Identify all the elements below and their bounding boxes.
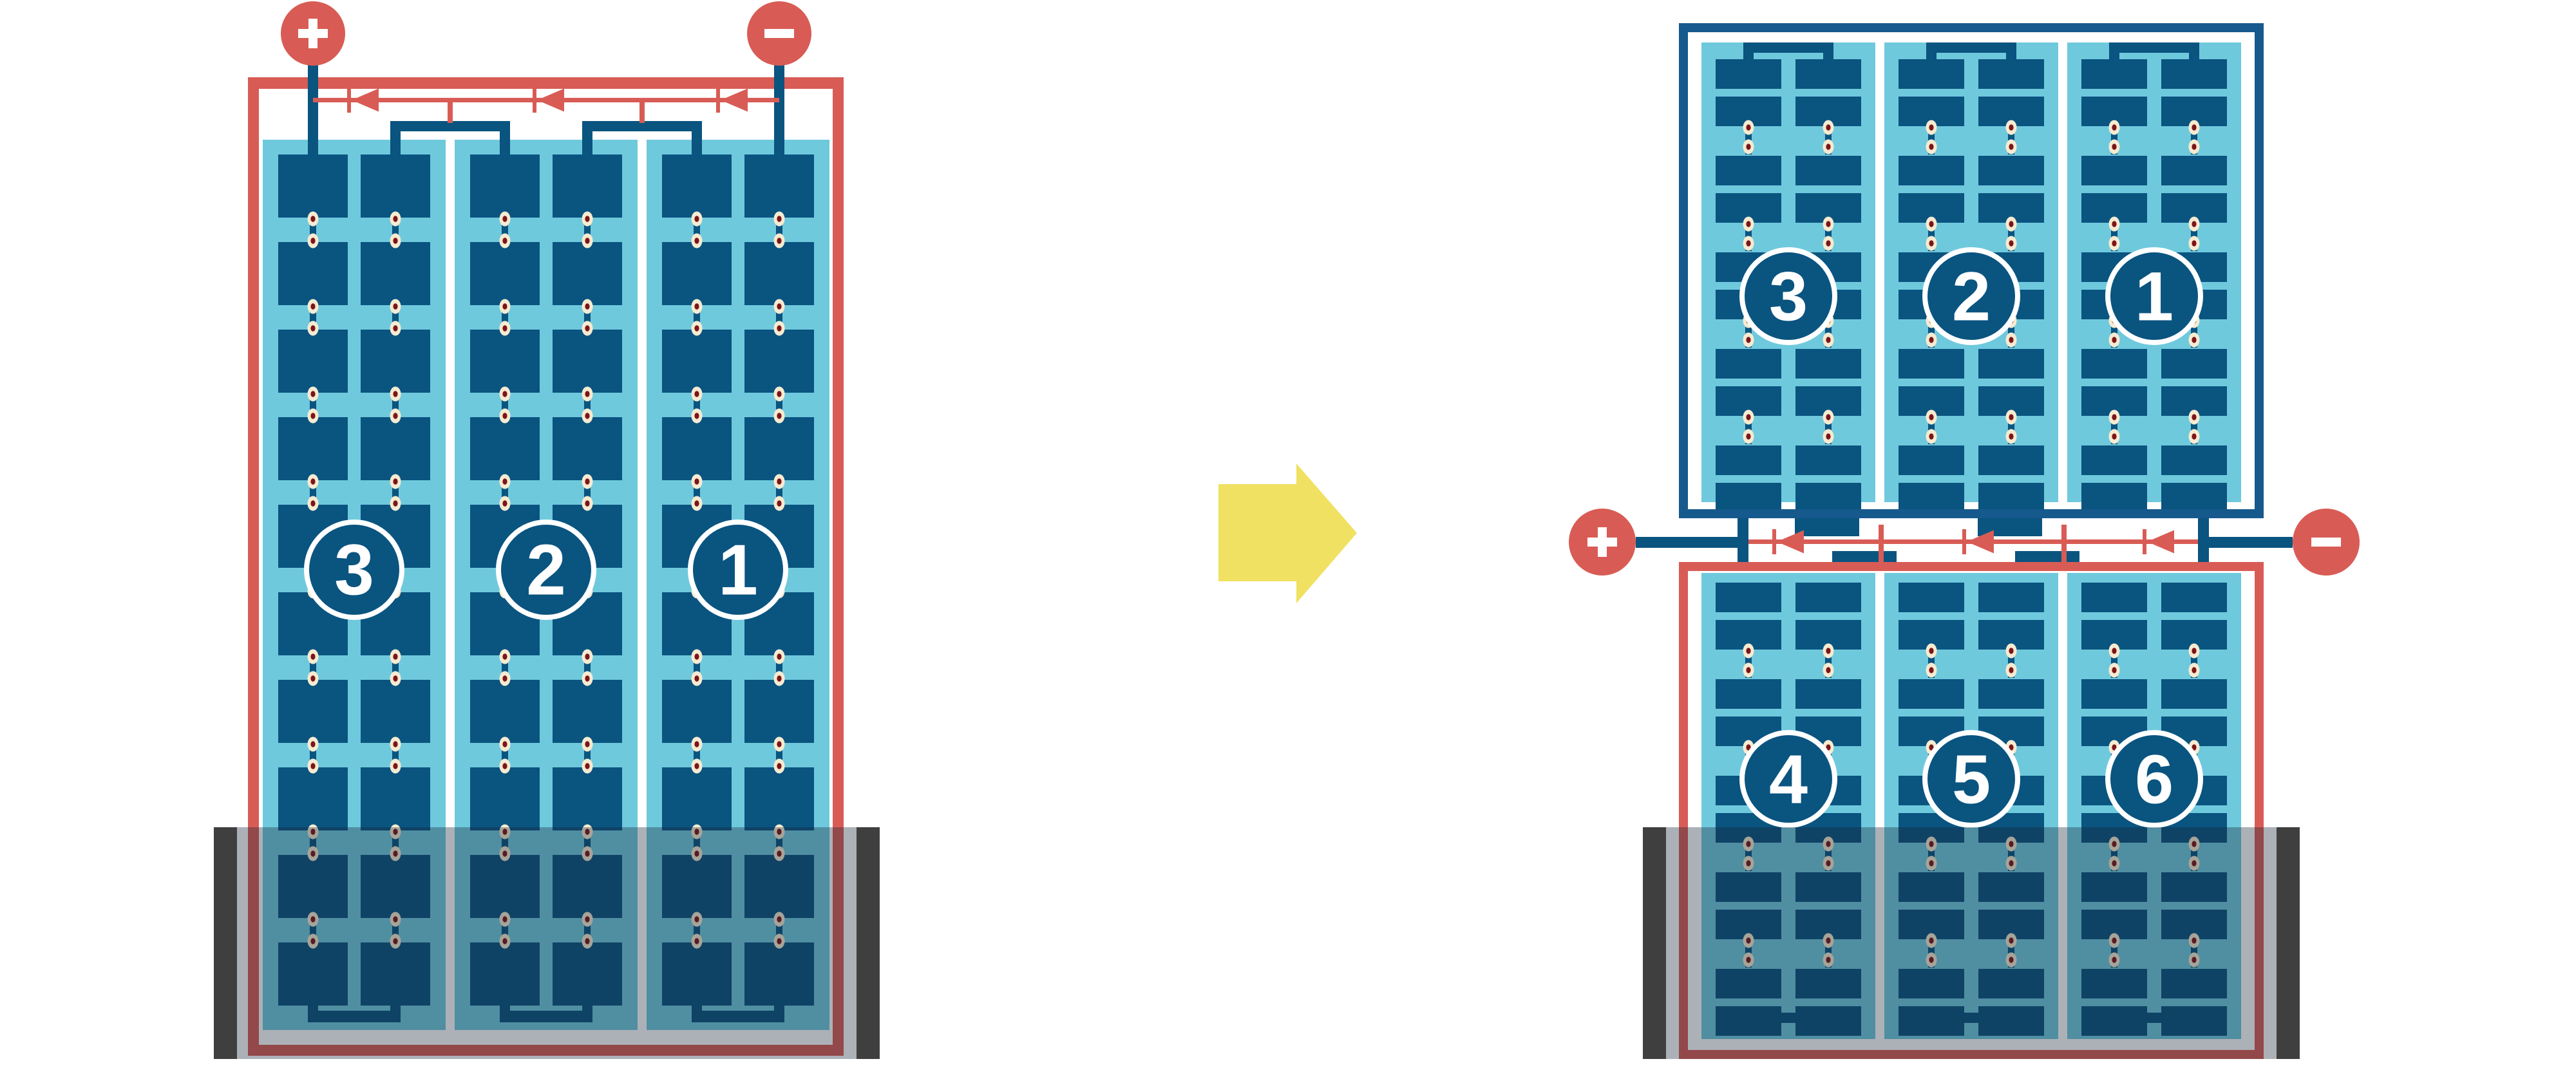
bypass-diode-icon: [533, 88, 564, 113]
solar-cell: [1795, 156, 1861, 185]
solar-cell: [2161, 349, 2227, 379]
solar-cell: [1795, 349, 1861, 379]
solder-dot-core: [1826, 240, 1830, 247]
frame-bottom: [1679, 509, 2264, 518]
solar-cell: [1795, 483, 1861, 512]
solder-dot-core: [1929, 240, 1933, 247]
solar-cell: [2081, 679, 2147, 709]
shade-post-left: [214, 827, 237, 1059]
solder-dot-core: [2112, 433, 2116, 440]
solder-dot-core: [310, 478, 315, 485]
solder-dot-core: [393, 653, 397, 660]
solder-dot-core: [2192, 667, 2196, 673]
solder-dot-core: [1746, 221, 1750, 227]
solar-cell: [2081, 483, 2147, 512]
solder-dot-core: [777, 413, 781, 419]
solder-dot-core: [777, 741, 781, 747]
solder-dot-core: [694, 325, 699, 332]
junction-bar-left: [1738, 518, 1748, 562]
solder-dot-core: [2009, 144, 2013, 150]
minus-h: [764, 29, 794, 38]
string-number: 3: [334, 530, 374, 610]
solar-cell: [553, 417, 622, 480]
solder-dot-core: [777, 500, 781, 507]
diode-triangle: [1777, 530, 1804, 554]
solar-cell: [662, 242, 732, 305]
solder-dot-core: [1929, 414, 1933, 420]
solder-dot-core: [310, 238, 315, 244]
solar-cell: [2161, 483, 2227, 512]
solder-dot-core: [502, 325, 507, 332]
junction-tab-down: [1795, 518, 1859, 536]
solder-dot-core: [2112, 648, 2116, 654]
diode-bar: [347, 88, 351, 113]
solar-cell: [1978, 583, 2044, 612]
solder-dot-core: [2192, 337, 2196, 343]
frame-top: [1679, 23, 2264, 32]
terminal-lead: [774, 57, 784, 157]
frame-top: [248, 77, 844, 89]
solder-dot-core: [2112, 144, 2116, 150]
positive-terminal: +: [281, 1, 345, 66]
solar-cell: [1899, 349, 1964, 379]
diode-bar: [716, 88, 720, 113]
string-number-badge: 1: [2108, 250, 2201, 342]
positive-terminal: +: [1569, 509, 1636, 576]
solder-dot-core: [2192, 648, 2196, 654]
string-number: 1: [2135, 257, 2173, 335]
solar-cell: [662, 680, 732, 743]
diode-bar: [1962, 529, 1966, 554]
solder-dot-core: [777, 238, 781, 244]
solar-cell: [278, 680, 348, 743]
string-jumper-leg: [1823, 53, 1833, 64]
solar-cell: [278, 417, 348, 480]
solder-dot-core: [585, 763, 589, 769]
solder-dot-core: [310, 391, 315, 397]
shadow-region: [1643, 827, 2300, 1059]
solder-dot-core: [502, 741, 507, 747]
solder-dot-core: [2009, 221, 2013, 227]
solar-cell: [470, 680, 540, 743]
plus-v: [1598, 527, 1607, 557]
bus-stub: [1879, 525, 1884, 562]
solder-dot-core: [1746, 414, 1750, 420]
left-module: 321+−: [214, 1, 880, 1059]
solar-cell: [2161, 583, 2227, 612]
solder-dot-core: [1826, 414, 1830, 420]
transition-arrow: [1218, 464, 1357, 603]
solder-dot-core: [777, 391, 781, 397]
string-jumper-top: [2109, 42, 2199, 53]
solder-dot-core: [502, 413, 507, 419]
solder-dot-core: [2112, 337, 2116, 343]
solar-cell: [278, 330, 348, 393]
frame-top: [1679, 562, 2264, 571]
string-number: 4: [1769, 740, 1808, 818]
solar-cell: [662, 767, 732, 830]
negative-terminal: −: [747, 1, 811, 66]
solar-cell: [1716, 349, 1781, 379]
solar-cell: [1978, 445, 2044, 475]
top-right-module: 321: [1679, 23, 2264, 518]
junction-tab-up: [1832, 551, 1897, 562]
solder-dot-core: [585, 325, 589, 332]
solder-dot-core: [694, 238, 699, 244]
solar-cell: [361, 242, 430, 305]
bus-stub: [639, 102, 645, 123]
solar-cell: [1795, 583, 1861, 612]
solder-dot-core: [2192, 433, 2196, 440]
solar-cell: [1795, 445, 1861, 475]
bypass-diode-icon: [347, 88, 379, 113]
solder-dot-core: [2192, 221, 2196, 227]
solar-cell: [2161, 445, 2227, 475]
string-number-badge: 4: [1742, 733, 1835, 825]
string-number-badge: 3: [307, 522, 402, 617]
solder-dot-core: [585, 741, 589, 747]
solar-cell: [553, 680, 622, 743]
string-number: 1: [718, 530, 758, 610]
solar-cell: [470, 155, 540, 218]
solar-cell: [361, 680, 430, 743]
solder-dot-core: [310, 413, 315, 419]
solder-dot-core: [585, 216, 589, 222]
solder-dot-core: [393, 741, 397, 747]
junction-bar-right: [2198, 518, 2209, 562]
string-jumper-leg: [2109, 53, 2119, 64]
string-jumper-top: [1926, 42, 2016, 53]
string-number: 6: [2135, 740, 2173, 818]
bypass-diode-icon: [1772, 529, 1804, 554]
solar-cell: [662, 155, 732, 218]
solder-dot-core: [585, 413, 589, 419]
string-jumper-leg: [2189, 53, 2199, 64]
solder-dot-core: [2009, 414, 2013, 420]
solder-dot-core: [1746, 433, 1750, 440]
diode-bar: [2143, 529, 2146, 554]
solar-cell: [2081, 156, 2147, 185]
solder-dot-core: [1746, 667, 1750, 673]
string-number-badge: 1: [690, 522, 786, 617]
solder-dot-core: [694, 675, 699, 682]
solder-dot-core: [1929, 648, 1933, 654]
solder-dot-core: [694, 391, 699, 397]
string-number: 3: [1769, 257, 1808, 335]
solder-dot-core: [1929, 337, 1933, 343]
frame-left: [1679, 23, 1688, 518]
solder-dot-core: [1746, 124, 1750, 131]
diode-triangle: [721, 89, 748, 112]
shade-post-left: [1643, 827, 1666, 1059]
solder-dot-core: [1746, 144, 1750, 150]
solder-dot-core: [2009, 124, 2013, 131]
string-number-badge: 2: [498, 522, 594, 617]
solder-dot-core: [2112, 240, 2116, 247]
diode-bar: [533, 88, 536, 113]
solder-dot-core: [2192, 240, 2196, 247]
solder-dot-core: [585, 675, 589, 682]
solar-cell: [470, 767, 540, 830]
solar-cell: [1899, 483, 1964, 512]
solder-dot-core: [777, 763, 781, 769]
solder-dot-core: [393, 238, 397, 244]
solar-cell: [1978, 679, 2044, 709]
minus-h: [2311, 538, 2341, 547]
solder-dot-core: [393, 303, 397, 310]
solder-dot-core: [1826, 433, 1830, 440]
solder-dot-core: [585, 303, 589, 310]
bus-stub: [448, 102, 453, 123]
solar-cell: [1899, 583, 1964, 612]
solder-dot-core: [1746, 337, 1750, 343]
solder-dot-core: [1929, 144, 1933, 150]
frame-right: [2255, 23, 2264, 518]
solder-dot-core: [1746, 240, 1750, 247]
solder-dot-core: [585, 500, 589, 507]
shading-overlay: [214, 827, 880, 1059]
string-number: 2: [526, 530, 566, 610]
solder-dot-core: [694, 478, 699, 485]
diode-triangle: [352, 89, 379, 112]
terminal-lead: [1636, 537, 1738, 548]
solder-dot-core: [1929, 221, 1933, 227]
diode-triangle: [2147, 530, 2174, 554]
solar-cell: [2161, 679, 2227, 709]
solder-dot-core: [777, 303, 781, 310]
negative-terminal: −: [2293, 509, 2360, 576]
solder-dot-core: [310, 741, 315, 747]
solder-dot-core: [1929, 433, 1933, 440]
jumper-leg: [500, 131, 510, 160]
solder-dot-core: [694, 500, 699, 507]
solar-cell: [361, 330, 430, 393]
solder-dot-core: [2009, 240, 2013, 247]
solar-cell: [1716, 445, 1781, 475]
solder-dot-core: [2192, 144, 2196, 150]
solder-dot-core: [310, 303, 315, 310]
module-wiring-diagram: 321+−321456+−: [0, 0, 2576, 1068]
jumper-leg: [390, 131, 401, 160]
solder-dot-core: [502, 500, 507, 507]
solar-cell: [1978, 156, 2044, 185]
string-jumper-top: [1743, 42, 1833, 53]
solder-dot-core: [694, 303, 699, 310]
string-jumper-leg: [2006, 53, 2016, 64]
solar-cell: [470, 417, 540, 480]
bypass-diode-bus: [313, 88, 779, 123]
solar-cell: [1716, 679, 1781, 709]
solder-dot-core: [393, 413, 397, 419]
solder-dot-core: [694, 741, 699, 747]
solder-dot-core: [393, 391, 397, 397]
solar-cell: [553, 242, 622, 305]
solder-dot-core: [310, 216, 315, 222]
shadow-region: [214, 827, 880, 1059]
solar-cell: [2081, 583, 2147, 612]
solar-cell: [744, 767, 814, 830]
solar-cell: [1899, 156, 1964, 185]
solder-dot-core: [310, 653, 315, 660]
solder-dot-core: [585, 653, 589, 660]
solar-cell: [553, 330, 622, 393]
solder-dot-core: [502, 238, 507, 244]
solder-dot-core: [502, 763, 507, 769]
solar-cell: [744, 330, 814, 393]
shade-post-right: [857, 827, 880, 1059]
plus-v: [308, 19, 317, 48]
solar-cell: [553, 767, 622, 830]
string-jumper-leg: [1743, 53, 1754, 64]
jumper-leg: [582, 131, 592, 160]
solder-dot-core: [1826, 124, 1830, 131]
solder-dot-core: [2112, 667, 2116, 673]
solar-cell: [1899, 445, 1964, 475]
solder-dot-core: [310, 675, 315, 682]
jumper-leg: [692, 131, 702, 160]
solar-cell: [2081, 445, 2147, 475]
solder-dot-core: [393, 325, 397, 332]
solder-dot-core: [777, 325, 781, 332]
solar-cell: [1716, 156, 1781, 185]
solar-cell: [1899, 679, 1964, 709]
solder-dot-core: [694, 413, 699, 419]
solder-dot-core: [2112, 414, 2116, 420]
string-number-badge: 2: [1925, 250, 2018, 342]
diagram-canvas: 321+−321456+−: [0, 0, 2576, 1068]
solder-dot-core: [502, 391, 507, 397]
solder-dot-core: [502, 675, 507, 682]
solar-cell: [662, 417, 732, 480]
solder-dot-core: [777, 653, 781, 660]
solar-cell: [1716, 483, 1781, 512]
shade-post-right: [2277, 827, 2300, 1059]
diode-triangle: [537, 89, 564, 112]
solder-dot-core: [1826, 648, 1830, 654]
solder-dot-core: [694, 216, 699, 222]
solder-dot-core: [585, 478, 589, 485]
bus-stub: [2061, 525, 2067, 562]
solder-dot-core: [393, 675, 397, 682]
string-number-badge: 5: [1925, 733, 2018, 825]
solar-cell: [361, 155, 430, 218]
solar-cell: [361, 767, 430, 830]
solder-dot-core: [777, 675, 781, 682]
bypass-diode-icon: [716, 88, 748, 113]
solder-dot-core: [2192, 414, 2196, 420]
solar-cell: [744, 242, 814, 305]
solar-cell: [744, 680, 814, 743]
solder-dot-core: [777, 478, 781, 485]
solar-cell: [744, 155, 814, 218]
solder-dot-core: [694, 653, 699, 660]
solder-dot-core: [1826, 667, 1830, 673]
solder-dot-core: [393, 500, 397, 507]
solder-dot-core: [1826, 221, 1830, 227]
string-number-badge: 3: [1742, 250, 1835, 342]
solar-cell: [278, 155, 348, 218]
string-number: 2: [1952, 257, 1991, 335]
solder-dot-core: [2192, 124, 2196, 131]
bypass-diode-icon: [2143, 529, 2174, 554]
solder-dot-core: [2009, 337, 2013, 343]
solar-cell: [361, 417, 430, 480]
solder-dot-core: [502, 478, 507, 485]
solar-cell: [1978, 483, 2044, 512]
minus-icon: [2311, 538, 2341, 547]
solar-cell: [278, 242, 348, 305]
solder-dot-core: [310, 325, 315, 332]
solder-dot-core: [1746, 648, 1750, 654]
solar-cell: [278, 767, 348, 830]
solder-dot-core: [393, 478, 397, 485]
solder-dot-core: [2009, 648, 2013, 654]
solder-dot-core: [310, 500, 315, 507]
solder-dot-core: [2009, 433, 2013, 440]
solar-cell: [662, 330, 732, 393]
string-jumper-leg: [1926, 53, 1937, 64]
diode-bar: [1772, 529, 1776, 554]
solder-dot-core: [2112, 221, 2116, 227]
solar-cell: [1978, 349, 2044, 379]
solder-dot-core: [585, 238, 589, 244]
solder-dot-core: [1826, 337, 1830, 343]
solder-dot-core: [502, 653, 507, 660]
solder-dot-core: [585, 391, 589, 397]
solder-dot-core: [1929, 667, 1933, 673]
solar-cell: [1795, 679, 1861, 709]
solder-dot-core: [393, 216, 397, 222]
solder-dot-core: [2112, 124, 2116, 131]
solder-dot-core: [502, 303, 507, 310]
solar-cell: [470, 330, 540, 393]
terminal-lead: [2209, 537, 2293, 548]
solder-dot-core: [310, 763, 315, 769]
solar-cell: [2161, 156, 2227, 185]
minus-icon: [764, 29, 794, 38]
string-number-badge: 6: [2108, 733, 2201, 825]
solder-dot-core: [1929, 124, 1933, 131]
solder-dot-core: [777, 216, 781, 222]
solder-dot-core: [2009, 667, 2013, 673]
right-arrow-icon: [1218, 464, 1357, 603]
solder-dot-core: [393, 763, 397, 769]
solar-cell: [2081, 349, 2147, 379]
solder-dot-core: [694, 763, 699, 769]
solder-dot-core: [502, 216, 507, 222]
solder-dot-core: [1826, 144, 1830, 150]
terminal-lead: [308, 57, 318, 157]
junction-tab-up: [2015, 551, 2079, 562]
solar-cell: [1716, 583, 1781, 612]
solar-cell: [470, 242, 540, 305]
string-number: 5: [1952, 740, 1991, 818]
solar-cell: [553, 155, 622, 218]
solar-cell: [744, 417, 814, 480]
shading-overlay: [1643, 827, 2300, 1059]
